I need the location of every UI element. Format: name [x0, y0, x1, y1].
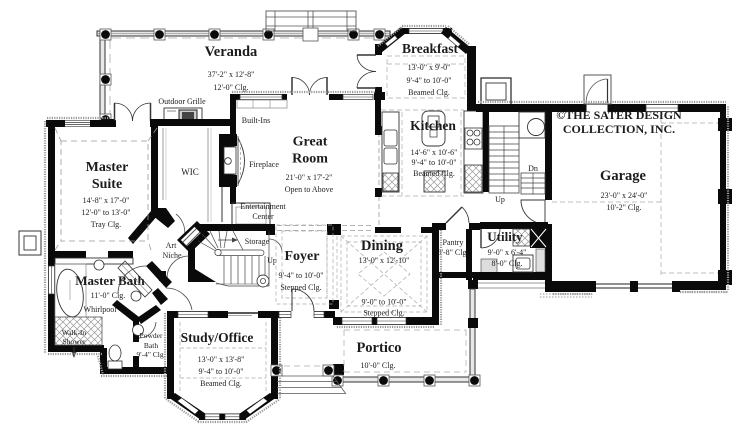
svg-text:Portico: Portico	[356, 340, 401, 356]
svg-text:Storage: Storage	[245, 237, 270, 246]
svg-text:Outdoor Grille: Outdoor Grille	[158, 97, 206, 106]
svg-text:Utility: Utility	[487, 229, 523, 244]
svg-text:COLLECTION, INC.: COLLECTION, INC.	[563, 122, 675, 136]
svg-text:Up: Up	[267, 256, 277, 265]
svg-text:Foyer: Foyer	[285, 249, 320, 264]
svg-text:Shower: Shower	[63, 337, 86, 346]
svg-text:Kitchen: Kitchen	[410, 118, 456, 133]
svg-text:Art: Art	[166, 241, 177, 250]
svg-text:Garage: Garage	[600, 168, 646, 184]
svg-text:14'-8" x 17'-0": 14'-8" x 17'-0"	[83, 196, 130, 205]
svg-text:Whirlpool: Whirlpool	[84, 305, 118, 314]
svg-text:Beamed Clg.: Beamed Clg.	[200, 379, 242, 388]
svg-text:Room: Room	[292, 152, 328, 167]
svg-text:9'-4" to 10'-0": 9'-4" to 10'-0"	[407, 76, 452, 85]
svg-text:Great: Great	[293, 135, 328, 150]
svg-text:9'-4" Clg.: 9'-4" Clg.	[137, 350, 166, 359]
svg-text:Tray Clg.: Tray Clg.	[91, 220, 121, 229]
svg-text:12'-0" to 13'-0": 12'-0" to 13'-0"	[82, 208, 131, 217]
svg-text:Up: Up	[495, 195, 505, 204]
svg-text:21'-0" x 17'-2": 21'-0" x 17'-2"	[286, 173, 333, 182]
svg-text:13'-0" x 12'-10": 13'-0" x 12'-10"	[359, 256, 410, 265]
svg-text:12'-0" Clg.: 12'-0" Clg.	[214, 83, 249, 92]
svg-text:Study/Office: Study/Office	[181, 330, 254, 345]
svg-text:9'-0" to 10'-0": 9'-0" to 10'-0"	[362, 298, 407, 307]
svg-text:Dn: Dn	[528, 164, 538, 173]
svg-text:Walk-In: Walk-In	[62, 328, 87, 337]
svg-text:Pantry: Pantry	[443, 238, 464, 247]
svg-text:10'-2" Clg.: 10'-2" Clg.	[607, 203, 642, 212]
svg-text:Dining: Dining	[361, 238, 404, 254]
svg-text:9'-4" to 10'-0": 9'-4" to 10'-0"	[279, 271, 324, 280]
svg-text:Built-Ins: Built-Ins	[242, 116, 270, 125]
svg-text:Beamed Clg.: Beamed Clg.	[413, 169, 455, 178]
svg-text:8'-8" Clg.: 8'-8" Clg.	[438, 248, 469, 257]
svg-text:Beamed Clg.: Beamed Clg.	[408, 88, 450, 97]
svg-text:14'-6" x 10'-6": 14'-6" x 10'-6"	[411, 148, 458, 157]
svg-text:WIC: WIC	[181, 167, 199, 177]
svg-text:Niche: Niche	[162, 251, 182, 260]
svg-text:Entertainment: Entertainment	[240, 202, 286, 211]
svg-text:9'-4" to 10'-0": 9'-4" to 10'-0"	[199, 367, 244, 376]
svg-text:Bath: Bath	[144, 341, 158, 350]
svg-text:8'-0" Clg.: 8'-0" Clg.	[492, 259, 523, 268]
svg-text:©THE SATER DESIGN: ©THE SATER DESIGN	[556, 108, 682, 122]
svg-text:Open to Above: Open to Above	[285, 185, 334, 194]
svg-text:9'-0" x 6'-4": 9'-0" x 6'-4"	[488, 248, 527, 257]
svg-text:13'-0" x 9'-0": 13'-0" x 9'-0"	[408, 63, 451, 72]
svg-text:10'-0" Clg.: 10'-0" Clg.	[361, 361, 396, 370]
svg-text:Suite: Suite	[92, 177, 122, 192]
svg-text:Stepped Clg.: Stepped Clg.	[363, 309, 404, 318]
svg-text:Veranda: Veranda	[205, 44, 258, 60]
svg-text:23'-0" x 24'-0": 23'-0" x 24'-0"	[601, 191, 648, 200]
svg-text:9'-4" to 10'-0": 9'-4" to 10'-0"	[412, 158, 457, 167]
svg-text:Breakfast: Breakfast	[402, 41, 459, 56]
svg-text:Fireplace: Fireplace	[249, 160, 279, 169]
svg-text:13'-0" x 13'-8": 13'-0" x 13'-8"	[198, 355, 245, 364]
svg-text:Master: Master	[86, 160, 129, 175]
svg-text:11'-0" Clg.: 11'-0" Clg.	[91, 291, 126, 300]
svg-text:37'-2" x 12'-8": 37'-2" x 12'-8"	[208, 70, 255, 79]
svg-text:Powder: Powder	[140, 331, 163, 340]
svg-text:Center: Center	[252, 212, 274, 221]
